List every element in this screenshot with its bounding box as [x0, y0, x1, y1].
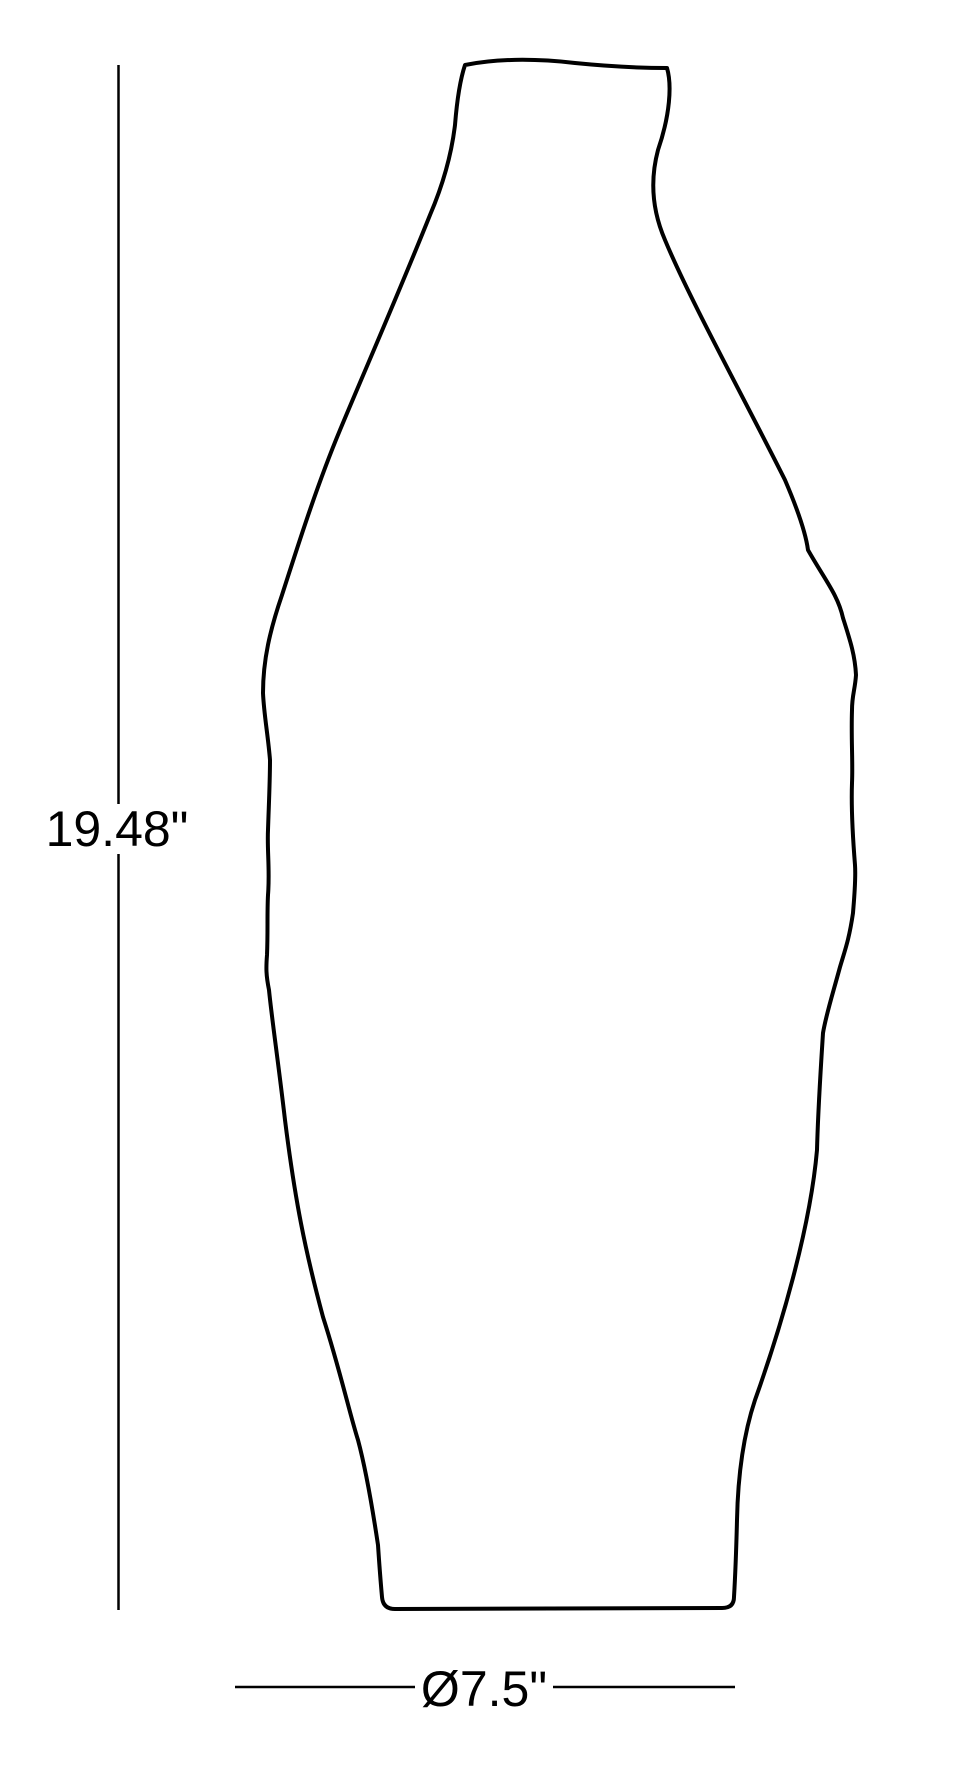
vase-outline-drawing: [0, 0, 965, 1775]
vase-outline: [263, 60, 856, 1609]
diameter-dimension-label: Ø7.5": [417, 1664, 551, 1714]
dimension-drawing-canvas: 19.48" Ø7.5": [0, 0, 965, 1775]
height-dimension-label: 19.48": [42, 804, 193, 854]
